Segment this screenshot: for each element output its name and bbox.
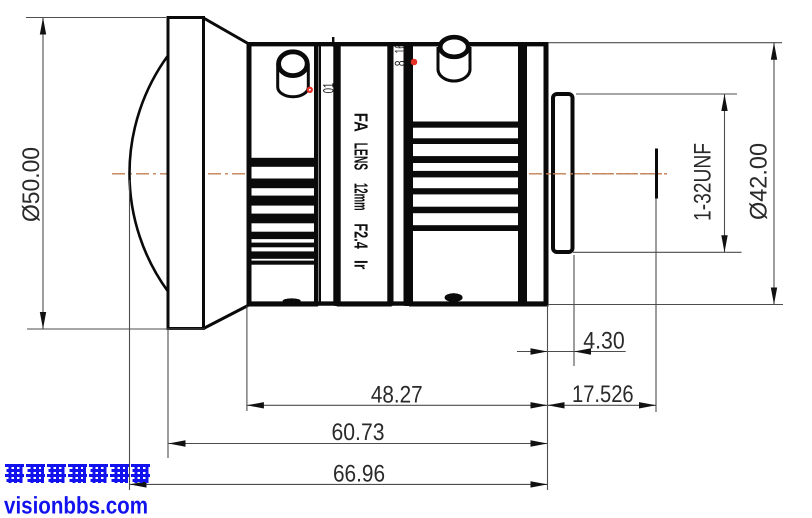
svg-text:66.96: 66.96 — [333, 461, 385, 488]
svg-text:Ir: Ir — [349, 260, 370, 270]
svg-text:LENS: LENS — [349, 143, 370, 171]
svg-text:1-32UNF: 1-32UNF — [690, 143, 717, 221]
svg-text:visionbbs.com: visionbbs.com — [4, 493, 148, 518]
svg-text:60.73: 60.73 — [332, 419, 385, 446]
svg-text:17.526: 17.526 — [572, 381, 634, 408]
svg-text:4.30: 4.30 — [583, 328, 624, 355]
svg-text:8: 8 — [391, 60, 407, 66]
svg-text:Ø50.00: Ø50.00 — [18, 147, 45, 222]
svg-text:01: 01 — [321, 83, 338, 94]
svg-text:12mm: 12mm — [349, 183, 370, 211]
svg-text:48.27: 48.27 — [371, 381, 423, 408]
svg-text:F2.4: F2.4 — [349, 223, 370, 249]
svg-text:Ø42.00: Ø42.00 — [746, 143, 773, 220]
svg-text:FA: FA — [349, 113, 370, 132]
